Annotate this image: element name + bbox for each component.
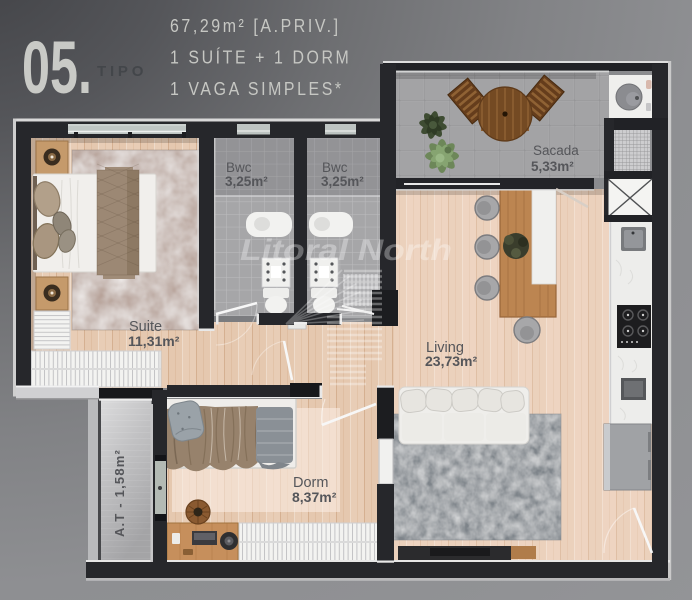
svg-text:5,33m²: 5,33m² [531, 159, 574, 174]
svg-text:1 SUÍTE + 1 DORM: 1 SUÍTE + 1 DORM [170, 46, 351, 67]
svg-text:Bwc: Bwc [322, 160, 348, 175]
svg-text:3,25m²: 3,25m² [225, 174, 268, 189]
svg-text:23,73m²: 23,73m² [425, 353, 477, 369]
svg-text:67,29m² [A.PRIV.]: 67,29m² [A.PRIV.] [170, 15, 341, 36]
svg-text:3,25m²: 3,25m² [321, 174, 364, 189]
svg-text:A.T - 1,58m²: A.T - 1,58m² [112, 449, 127, 537]
svg-text:Litoral North: Litoral North [240, 234, 452, 267]
svg-text:Bwc: Bwc [226, 160, 252, 175]
svg-text:11,31m²: 11,31m² [128, 333, 180, 349]
svg-text:05.: 05. [22, 28, 92, 110]
svg-text:Sacada: Sacada [533, 143, 579, 158]
svg-text:1 VAGA SIMPLES*: 1 VAGA SIMPLES* [170, 78, 344, 99]
svg-text:TIPO: TIPO [97, 63, 147, 80]
svg-text:8,37m²: 8,37m² [292, 489, 337, 505]
